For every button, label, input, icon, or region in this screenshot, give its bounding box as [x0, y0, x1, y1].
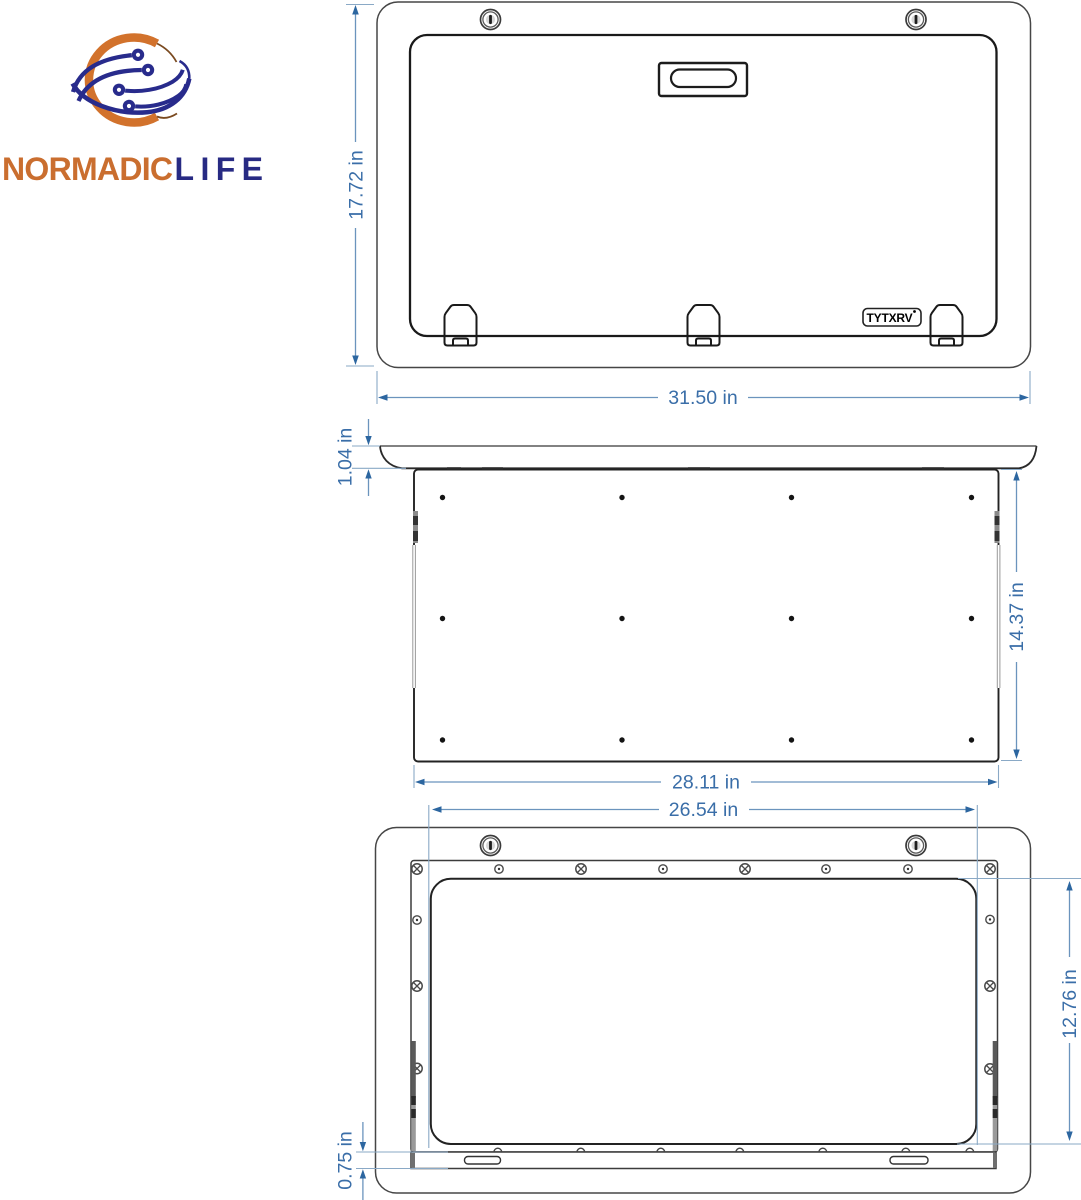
svg-text:14.37 in: 14.37 in — [1006, 582, 1028, 651]
svg-text:31.50 in: 31.50 in — [668, 387, 737, 409]
svg-text:28.11 in: 28.11 in — [672, 772, 740, 794]
svg-text:NORMADICLIFE: NORMADICLIFE — [2, 151, 263, 187]
svg-text:1.04 in: 1.04 in — [335, 428, 357, 487]
svg-text:12.76 in: 12.76 in — [1059, 969, 1081, 1038]
svg-text:0.75 in: 0.75 in — [335, 1131, 357, 1190]
svg-text:26.54 in: 26.54 in — [669, 799, 738, 821]
svg-text:TYTXRV: TYTXRV — [867, 311, 913, 325]
svg-text:17.72 in: 17.72 in — [346, 150, 368, 219]
